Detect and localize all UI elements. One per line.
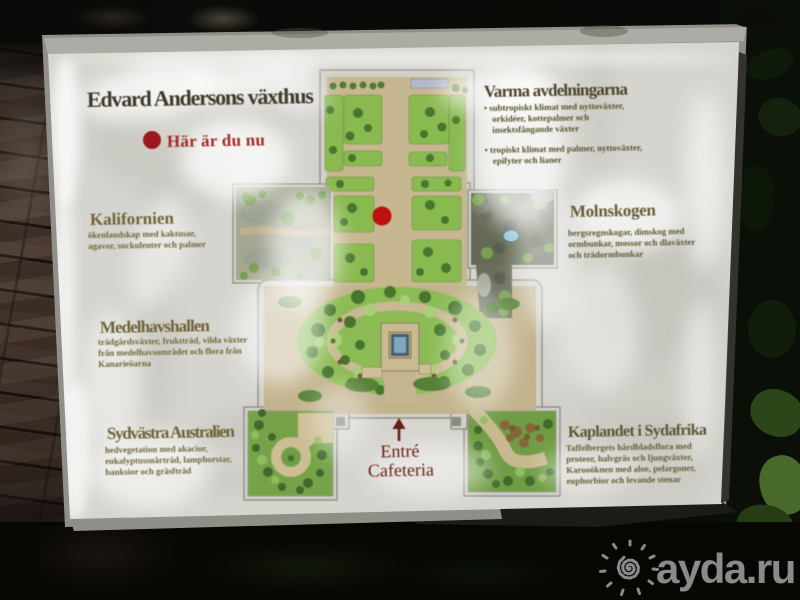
svg-text:agavor, suckulenter och palmer: agavor, suckulenter och palmer [88, 239, 206, 251]
svg-text:och trädormbunkar: och trädormbunkar [568, 249, 643, 260]
svg-text:Kalifornien: Kalifornien [90, 209, 175, 229]
svg-text:ökenlandskap med kaktusar,: ökenlandskap med kaktusar, [88, 228, 196, 240]
svg-text:Entré: Entré [380, 441, 419, 462]
svg-text:Varma avdelningarna: Varma avdelningarna [484, 79, 629, 101]
svg-text:Cafeteria: Cafeteria [368, 459, 434, 480]
svg-text:Sydvästra Australien: Sydvästra Australien [107, 422, 236, 443]
svg-text:Kanarieöarna: Kanarieöarna [98, 358, 152, 369]
svg-text:hedvegetation med akacior,: hedvegetation med akacior, [105, 443, 208, 455]
svg-text:Edvard Andersons växthus: Edvard Andersons växthus [87, 83, 315, 112]
svg-text:ayda.ru: ayda.ru [656, 545, 795, 592]
svg-text:bergsregnskogar, dimskog med: bergsregnskogar, dimskog med [568, 226, 685, 238]
svg-text:orkidéer, kottepalmer och: orkidéer, kottepalmer och [492, 112, 589, 124]
svg-text:Kaplandet i Sydafrika: Kaplandet i Sydafrika [568, 422, 707, 441]
svg-text:euphorbior och levande stenar: euphorbior och levande stenar [566, 474, 681, 486]
svg-text:banksior och gräsfträd: banksior och gräsfträd [105, 465, 191, 476]
svg-text:Här är du nu: Här är du nu [167, 130, 265, 151]
svg-text:Medelhavshallen: Medelhavshallen [100, 316, 211, 337]
svg-text:insektsfångande växter: insektsfångande växter [492, 123, 579, 135]
svg-text:Molnskogen: Molnskogen [570, 200, 657, 221]
svg-text:epifyter och lianer: epifyter och lianer [493, 155, 562, 166]
